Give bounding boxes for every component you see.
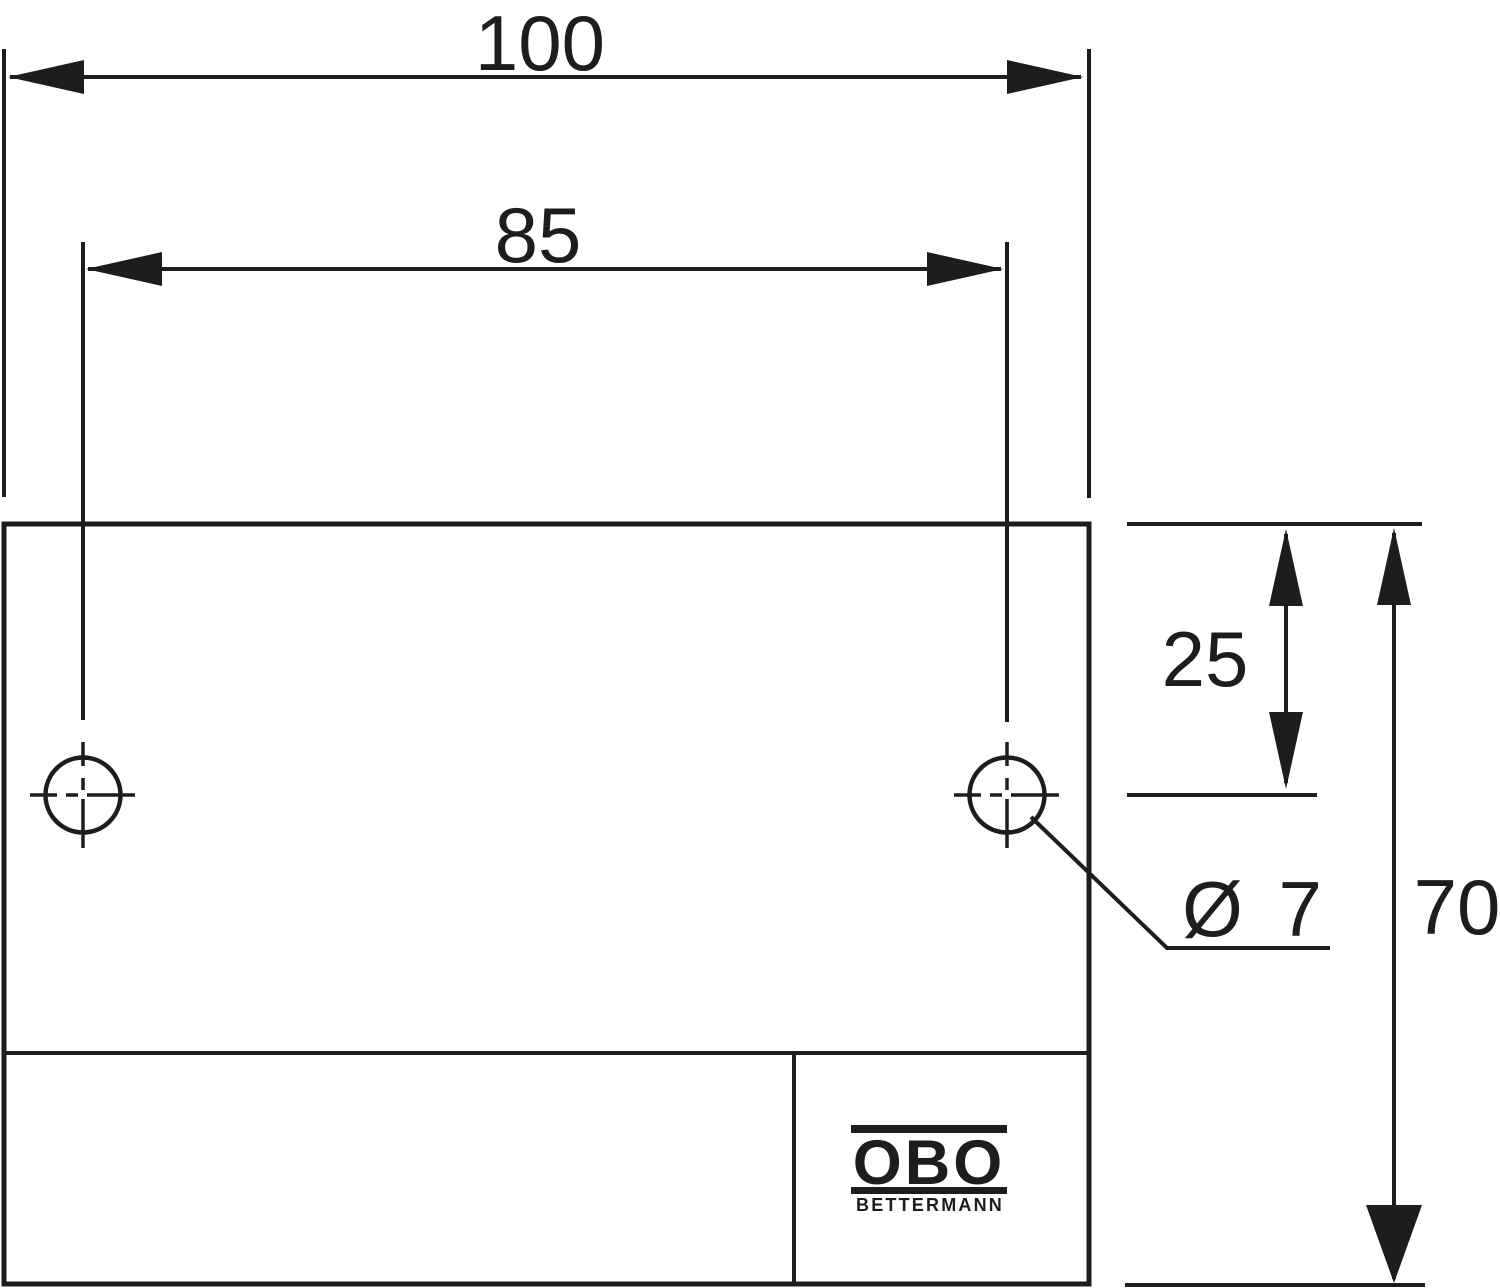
dim-25-arrowhead-up [1269,529,1303,606]
dim-25-arrowhead-down [1269,712,1303,789]
technical-drawing-canvas: 100 85 25 70 [0,0,1500,1288]
dim-100-arrowhead-right [1007,60,1083,94]
dimension-drawing: 100 85 25 70 [0,0,1500,1288]
hole-right [954,742,1059,848]
dim-height-70: 70 [1366,528,1500,1283]
dim-70-label: 70 [1414,863,1500,951]
dim-85-label: 85 [495,191,582,279]
hole-diameter-callout: Ø 7 [1031,817,1330,953]
logo-name-text: BETTERMANN [856,1195,1004,1215]
dim-70-arrowhead-up [1377,528,1411,605]
dim-100-arrowhead-left [8,60,84,94]
hole-left [30,742,135,848]
obo-bettermann-logo: OBO BETTERMANN [851,1125,1007,1215]
diameter-label: Ø 7 [1182,865,1322,953]
dim-100-label: 100 [475,0,605,87]
dim-85-arrowhead-right [927,252,1003,286]
dim-hole-offset-25: 25 [1162,529,1303,789]
dim-70-arrowhead-down [1366,1205,1422,1283]
dim-hole-spacing-85: 85 [83,191,1007,722]
dim-25-label: 25 [1162,615,1249,703]
logo-bottom-bar [851,1187,1007,1194]
dim-85-arrowhead-left [86,252,162,286]
